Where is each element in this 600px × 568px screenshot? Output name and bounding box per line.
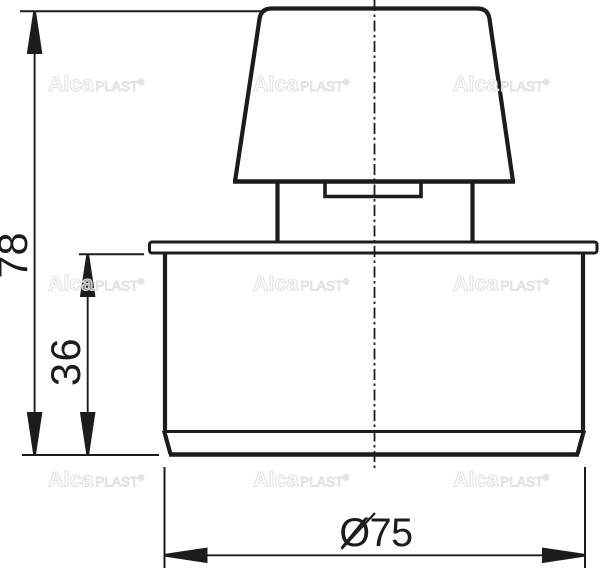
svg-text:78: 78 (0, 232, 36, 278)
svg-text:Ø75: Ø75 (339, 511, 412, 555)
svg-text:36: 36 (42, 337, 89, 386)
